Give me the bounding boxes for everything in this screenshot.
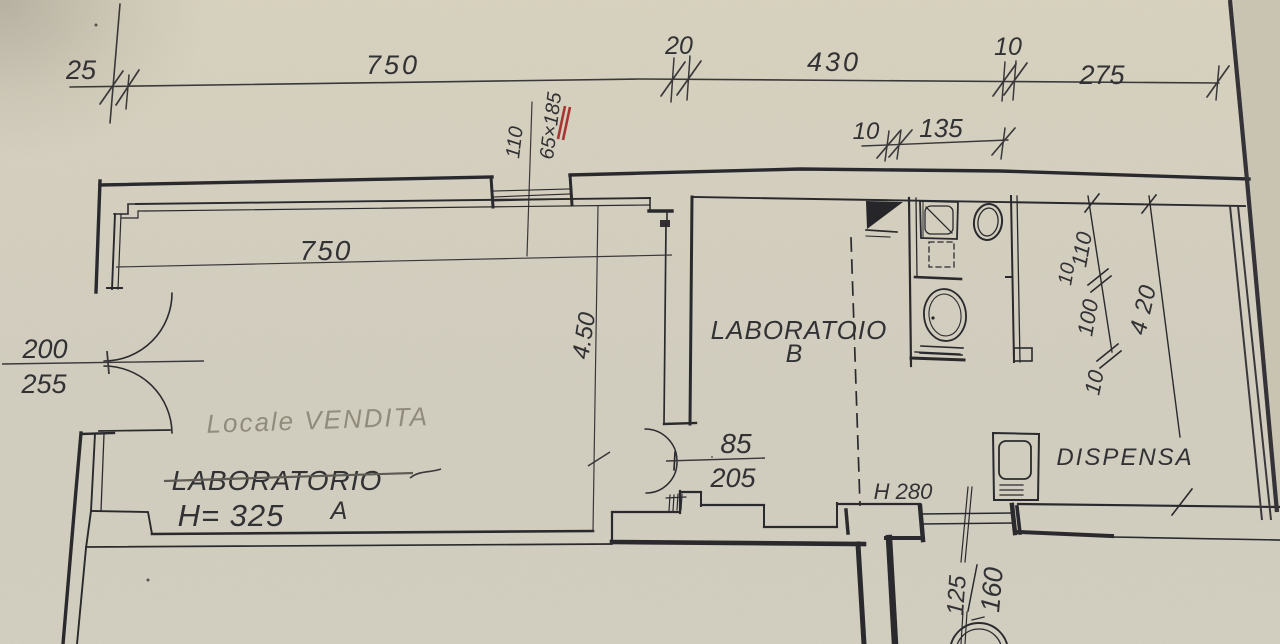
svg-text:255: 255 <box>20 369 67 399</box>
svg-text:H 280: H 280 <box>874 479 933 504</box>
svg-text:110: 110 <box>502 125 528 159</box>
svg-text:10: 10 <box>853 118 880 145</box>
svg-text:205: 205 <box>709 463 756 493</box>
svg-text:H= 325: H= 325 <box>178 498 285 533</box>
svg-text:20: 20 <box>664 32 693 60</box>
svg-text:160: 160 <box>975 566 1009 614</box>
svg-text:10: 10 <box>1054 261 1080 287</box>
svg-text:DISPENSA: DISPENSA <box>1056 444 1193 471</box>
svg-text:85: 85 <box>720 428 752 459</box>
svg-text:430: 430 <box>807 47 861 77</box>
svg-text:275: 275 <box>1078 60 1125 90</box>
svg-text:10: 10 <box>994 33 1022 61</box>
svg-text:200: 200 <box>21 334 67 364</box>
svg-text:25: 25 <box>65 55 97 85</box>
svg-text:750: 750 <box>366 50 420 80</box>
svg-text:B: B <box>786 340 803 368</box>
svg-text:125: 125 <box>942 574 972 616</box>
svg-text:750: 750 <box>300 235 353 266</box>
svg-text:A: A <box>329 497 348 525</box>
svg-text:135: 135 <box>919 113 963 143</box>
